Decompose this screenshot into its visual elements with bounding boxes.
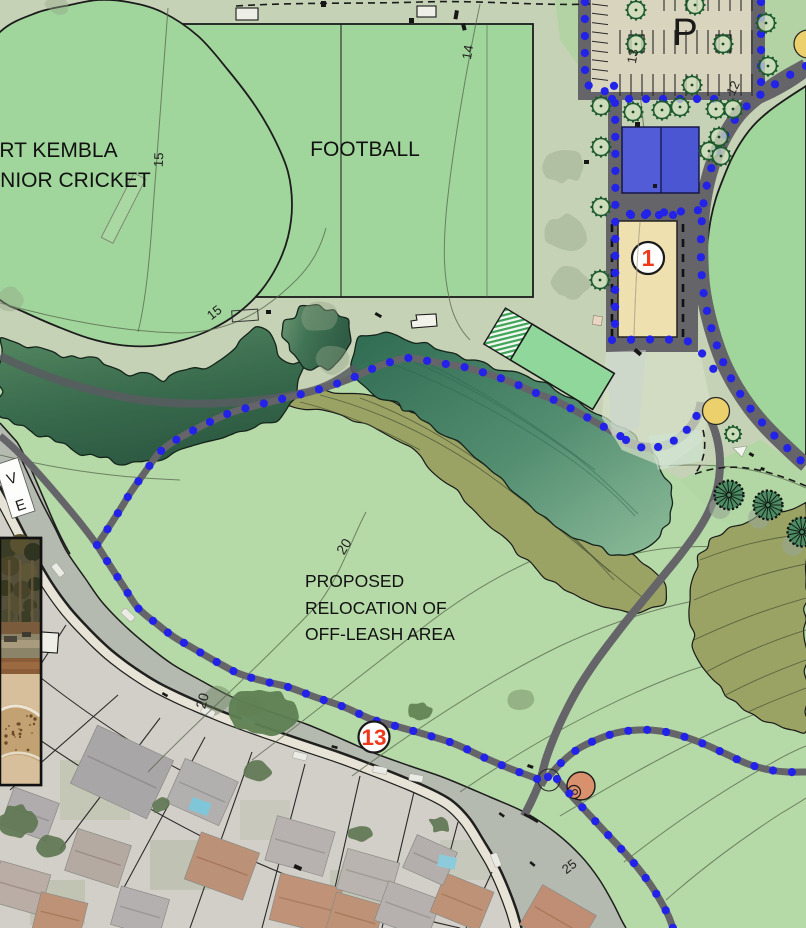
svg-text:14: 14 [459, 44, 476, 61]
svg-text:1: 1 [642, 245, 655, 271]
svg-text:RELOCATION OF: RELOCATION OF [305, 598, 447, 618]
svg-text:ORT KEMBLA: ORT KEMBLA [0, 139, 118, 162]
svg-text:FOOTBALL: FOOTBALL [310, 138, 420, 161]
svg-text:OFF-LEASH AREA: OFF-LEASH AREA [305, 624, 455, 644]
svg-text:PROPOSED: PROPOSED [305, 571, 404, 591]
svg-text:UNIOR CRICKET: UNIOR CRICKET [0, 169, 151, 192]
svg-text:15: 15 [151, 152, 167, 167]
svg-text:13: 13 [624, 48, 641, 65]
svg-text:P: P [672, 12, 697, 54]
svg-text:13: 13 [361, 725, 386, 750]
